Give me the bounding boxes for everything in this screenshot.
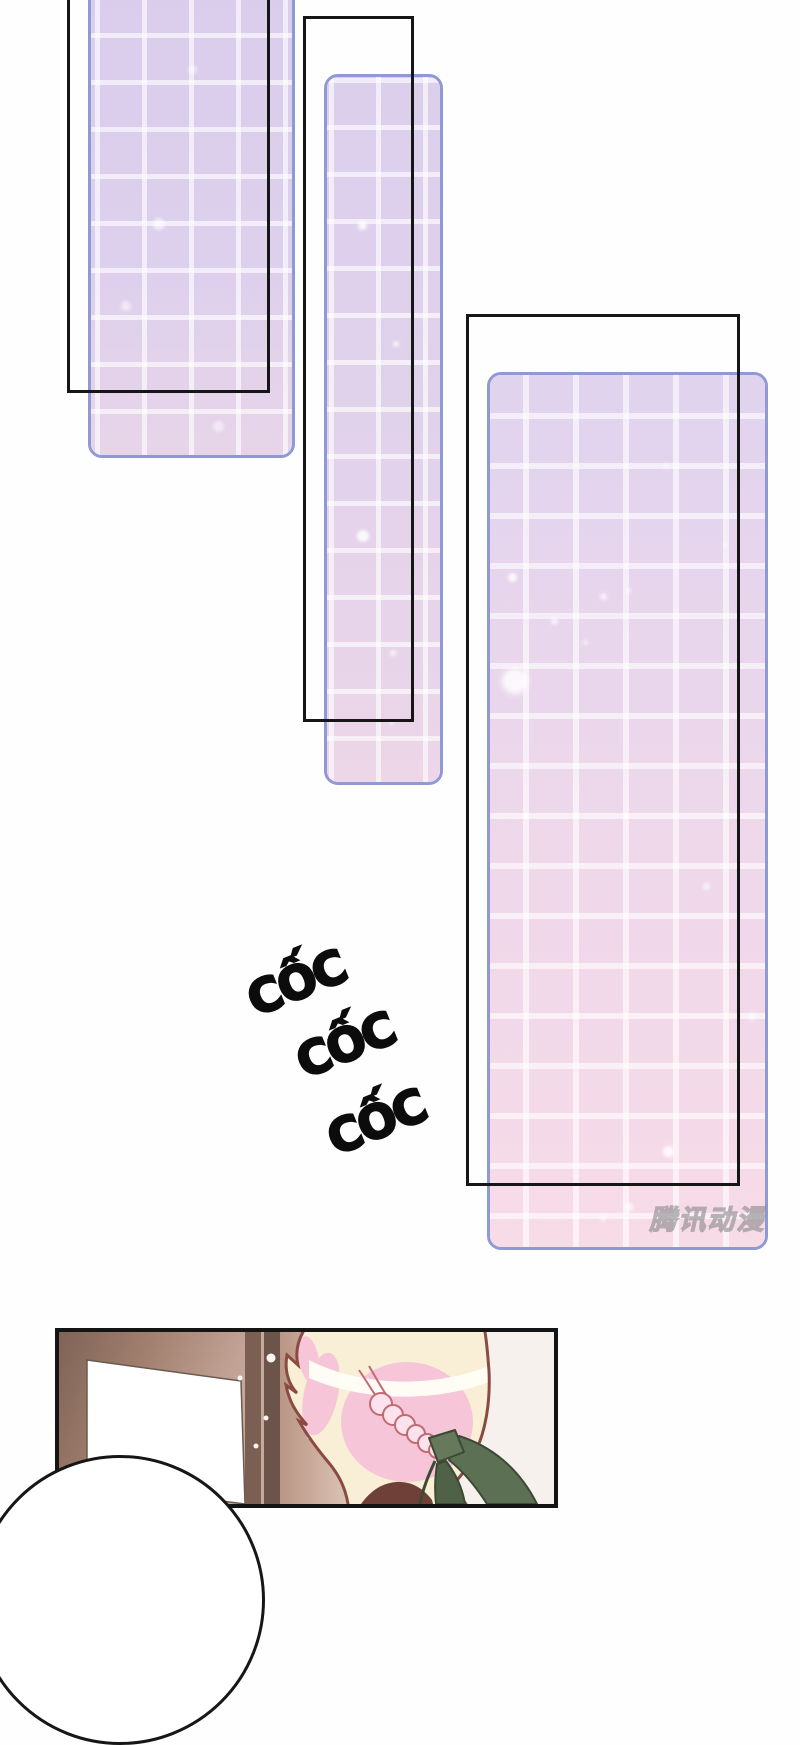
- sparkle: [625, 1203, 633, 1211]
- sfx-knock-1: CỐC: [240, 939, 354, 1027]
- sparkle: [600, 1215, 606, 1221]
- comic-page: { "page": { "type": "webtoon-comic-page"…: [0, 0, 800, 1495]
- sfx-knock-3: CỐC: [320, 1078, 434, 1166]
- tencent-comics-watermark: 腾讯动漫: [648, 1198, 772, 1237]
- sfx-knock-2: CỐC: [289, 1001, 403, 1089]
- panel-outline-frame-3: [466, 314, 740, 1186]
- panel-outline-frame-1: [67, 0, 270, 393]
- panel-outline-frame-2: [303, 16, 414, 722]
- sparkle: [213, 421, 224, 432]
- sparkle: [748, 1013, 756, 1021]
- door-frame-strip: [245, 1332, 261, 1504]
